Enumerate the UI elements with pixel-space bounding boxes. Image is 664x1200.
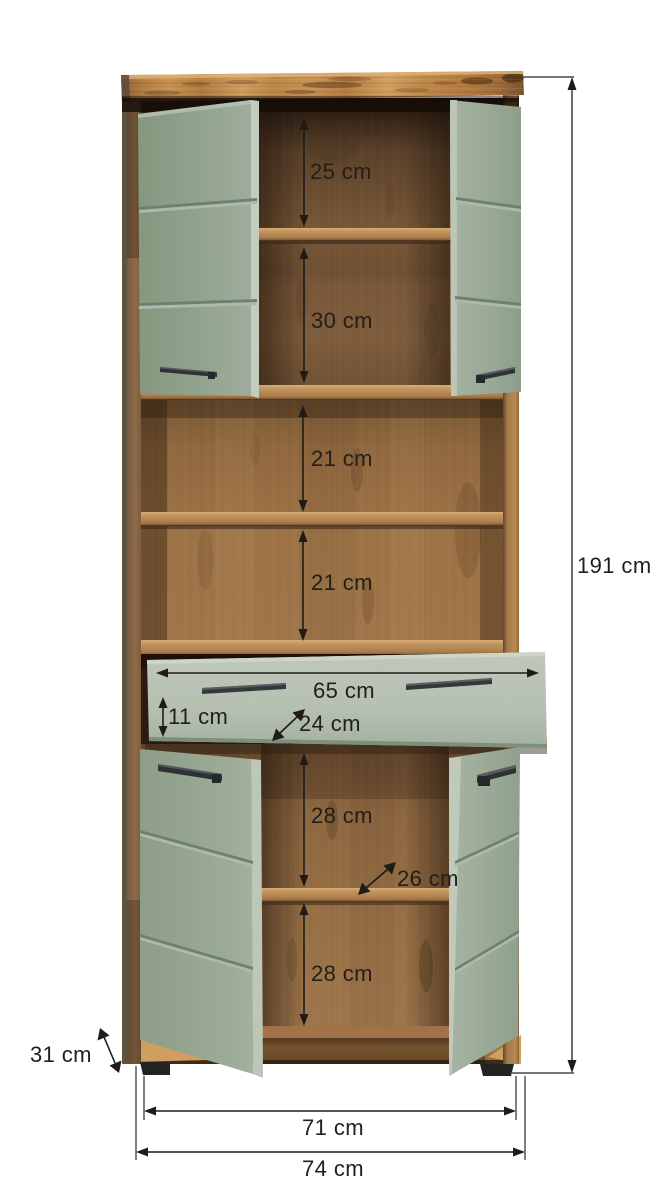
svg-text:191 cm: 191 cm: [577, 553, 652, 578]
svg-text:24 cm: 24 cm: [299, 711, 361, 736]
svg-text:71 cm: 71 cm: [302, 1115, 364, 1140]
svg-text:25 cm: 25 cm: [310, 159, 372, 184]
svg-text:31 cm: 31 cm: [30, 1042, 92, 1067]
svg-text:11 cm: 11 cm: [168, 704, 228, 729]
svg-text:65 cm: 65 cm: [313, 678, 375, 703]
svg-text:74 cm: 74 cm: [302, 1156, 364, 1181]
svg-text:28 cm: 28 cm: [311, 961, 373, 986]
svg-text:21 cm: 21 cm: [311, 570, 373, 595]
svg-text:21 cm: 21 cm: [311, 446, 373, 471]
svg-text:28 cm: 28 cm: [311, 803, 373, 828]
svg-text:30 cm: 30 cm: [311, 308, 373, 333]
svg-text:26 cm: 26 cm: [397, 866, 459, 891]
